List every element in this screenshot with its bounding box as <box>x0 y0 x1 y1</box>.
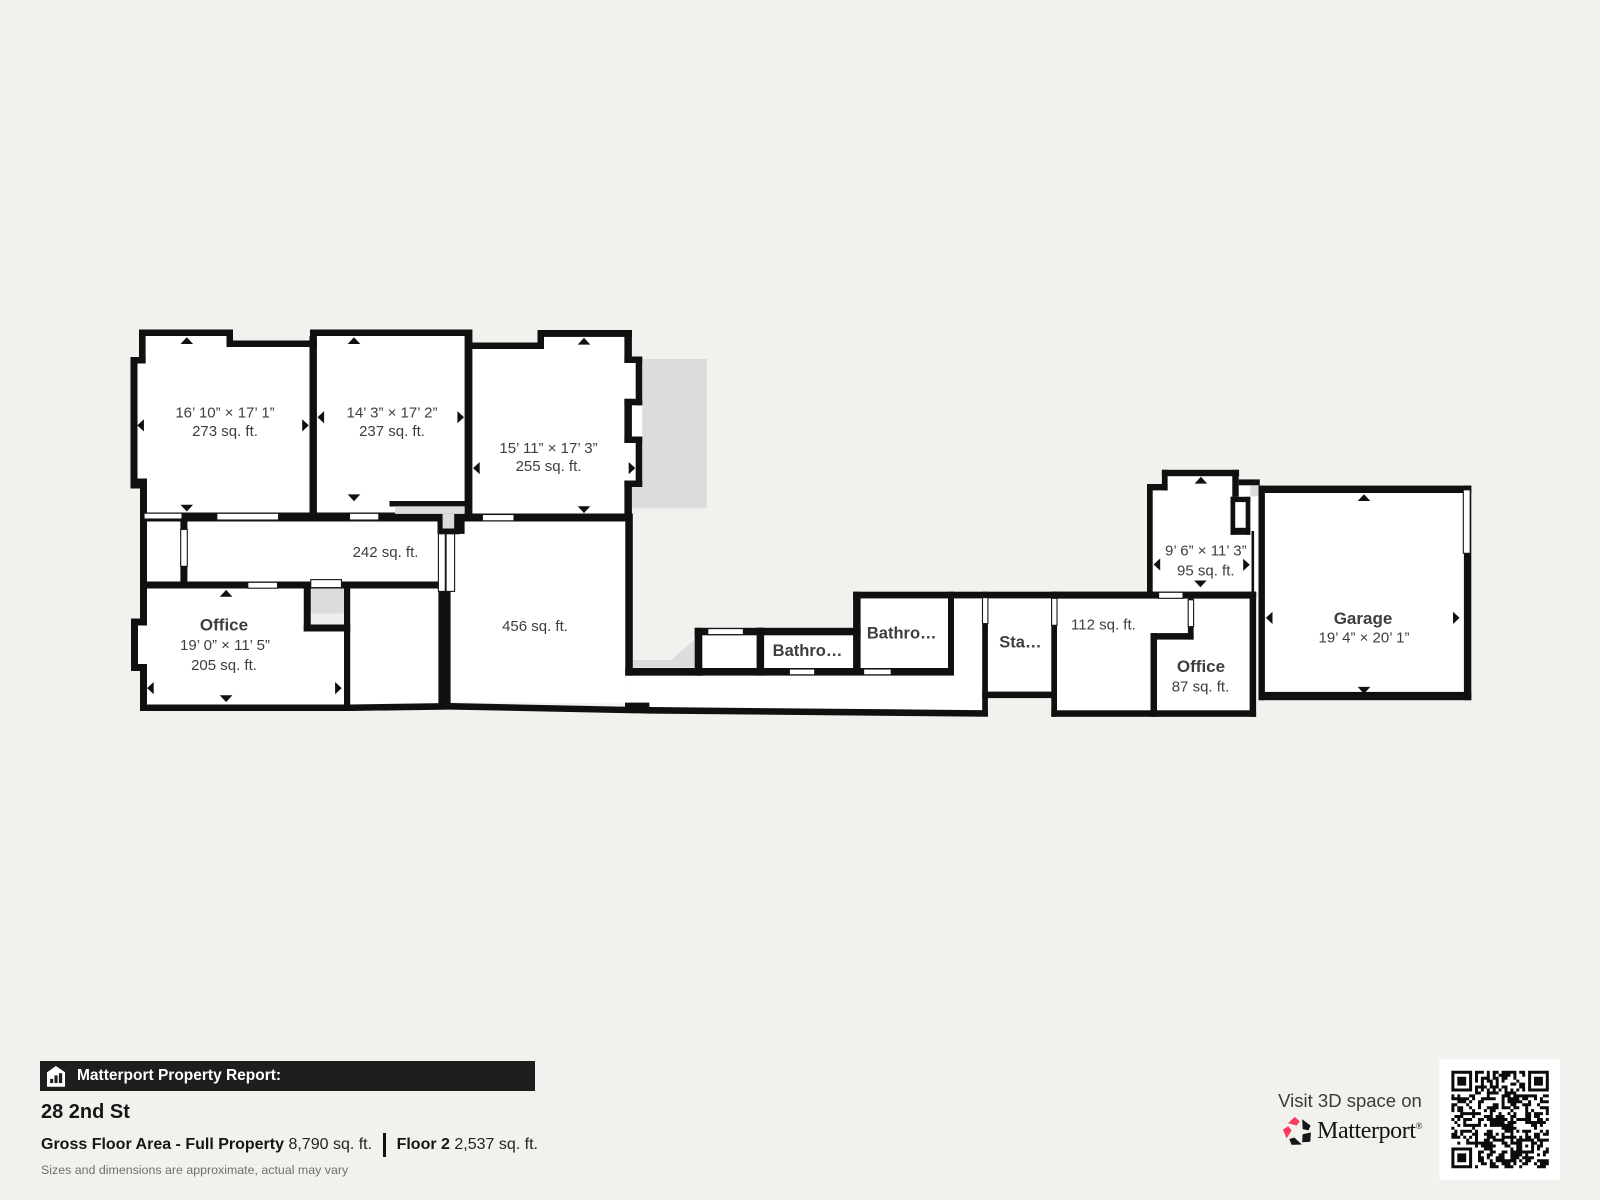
svg-text:Office: Office <box>200 615 248 634</box>
svg-text:9’ 6” × 11’ 3”: 9’ 6” × 11’ 3” <box>1165 542 1247 559</box>
svg-text:Sta…: Sta… <box>999 634 1041 652</box>
svg-text:16’ 10” × 17’ 1”: 16’ 10” × 17’ 1” <box>175 405 274 422</box>
svg-text:Bathro…: Bathro… <box>867 625 937 643</box>
svg-text:95 sq. ft.: 95 sq. ft. <box>1177 562 1235 579</box>
svg-text:87 sq. ft.: 87 sq. ft. <box>1172 679 1230 696</box>
svg-text:Bathro…: Bathro… <box>773 642 843 660</box>
svg-text:Garage: Garage <box>1334 609 1393 628</box>
svg-text:19’ 0” × 11’ 5”: 19’ 0” × 11’ 5” <box>180 637 270 654</box>
svg-text:Office: Office <box>1177 657 1225 676</box>
svg-text:15’ 11” × 17’ 3”: 15’ 11” × 17’ 3” <box>499 440 597 457</box>
svg-text:273 sq. ft.: 273 sq. ft. <box>192 423 258 440</box>
svg-text:242 sq. ft.: 242 sq. ft. <box>353 544 419 561</box>
svg-text:255 sq. ft.: 255 sq. ft. <box>516 458 582 475</box>
svg-text:205 sq. ft.: 205 sq. ft. <box>191 657 257 674</box>
svg-text:112 sq. ft.: 112 sq. ft. <box>1071 617 1136 634</box>
svg-text:237 sq. ft.: 237 sq. ft. <box>359 423 425 440</box>
svg-text:456 sq. ft.: 456 sq. ft. <box>502 618 568 635</box>
svg-text:19’ 4” × 20’ 1”: 19’ 4” × 20’ 1” <box>1318 629 1409 646</box>
svg-text:14’ 3” × 17’ 2”: 14’ 3” × 17’ 2” <box>346 405 437 422</box>
